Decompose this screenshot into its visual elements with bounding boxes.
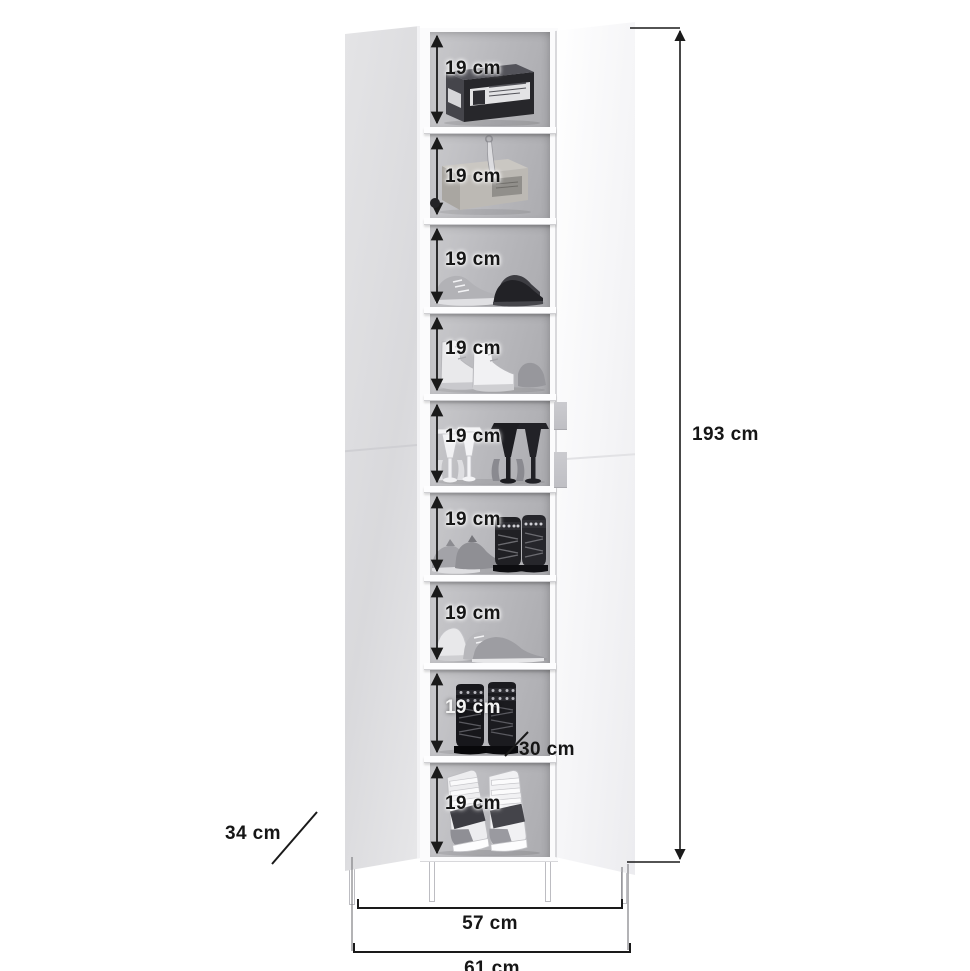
right-door-lower-edge-tab xyxy=(554,452,567,488)
shelf-height-label-9: 19 cm xyxy=(445,793,501,815)
shelf-board xyxy=(424,218,556,225)
depth-label: 34 cm xyxy=(225,823,281,845)
outer-width-label: 61 cm xyxy=(452,958,532,971)
left-door-seam xyxy=(343,444,422,453)
shelf-height-label-6: 19 cm xyxy=(445,509,501,531)
shelf-board xyxy=(424,486,556,493)
cabinet-leg xyxy=(545,862,551,902)
shelf-height-label-7: 19 cm xyxy=(445,603,501,625)
inner-width-label: 57 cm xyxy=(450,913,530,935)
shelf-height-label-5: 19 cm xyxy=(445,426,501,448)
shelf-height-label-4: 19 cm xyxy=(445,338,501,360)
shelf-height-label-1: 19 cm xyxy=(445,58,501,80)
dimension-diagram: 19 cm 19 cm 19 cm 19 cm 19 cm 19 cm 19 c… xyxy=(0,0,970,971)
shelf-board xyxy=(424,127,556,134)
sneakers-and-studded-boots-icon xyxy=(430,493,550,575)
shelf-height-label-3: 19 cm xyxy=(445,249,501,271)
shelf-board xyxy=(424,307,556,314)
shelf-board xyxy=(424,394,556,401)
right-door-upper-edge-tab xyxy=(554,402,567,430)
left-door-edge xyxy=(417,26,420,872)
shelf-board xyxy=(424,663,556,670)
shelf-height-label-2: 19 cm xyxy=(445,166,501,188)
left-door-open xyxy=(345,26,420,872)
shelf-depth-label: 30 cm xyxy=(519,739,575,761)
shelf-height-label-8: 19 cm xyxy=(445,697,501,719)
shelf-compartment-6 xyxy=(430,493,550,575)
cabinet-leg xyxy=(429,862,435,902)
total-height-label: 193 cm xyxy=(692,424,759,446)
shelf-board xyxy=(424,575,556,582)
